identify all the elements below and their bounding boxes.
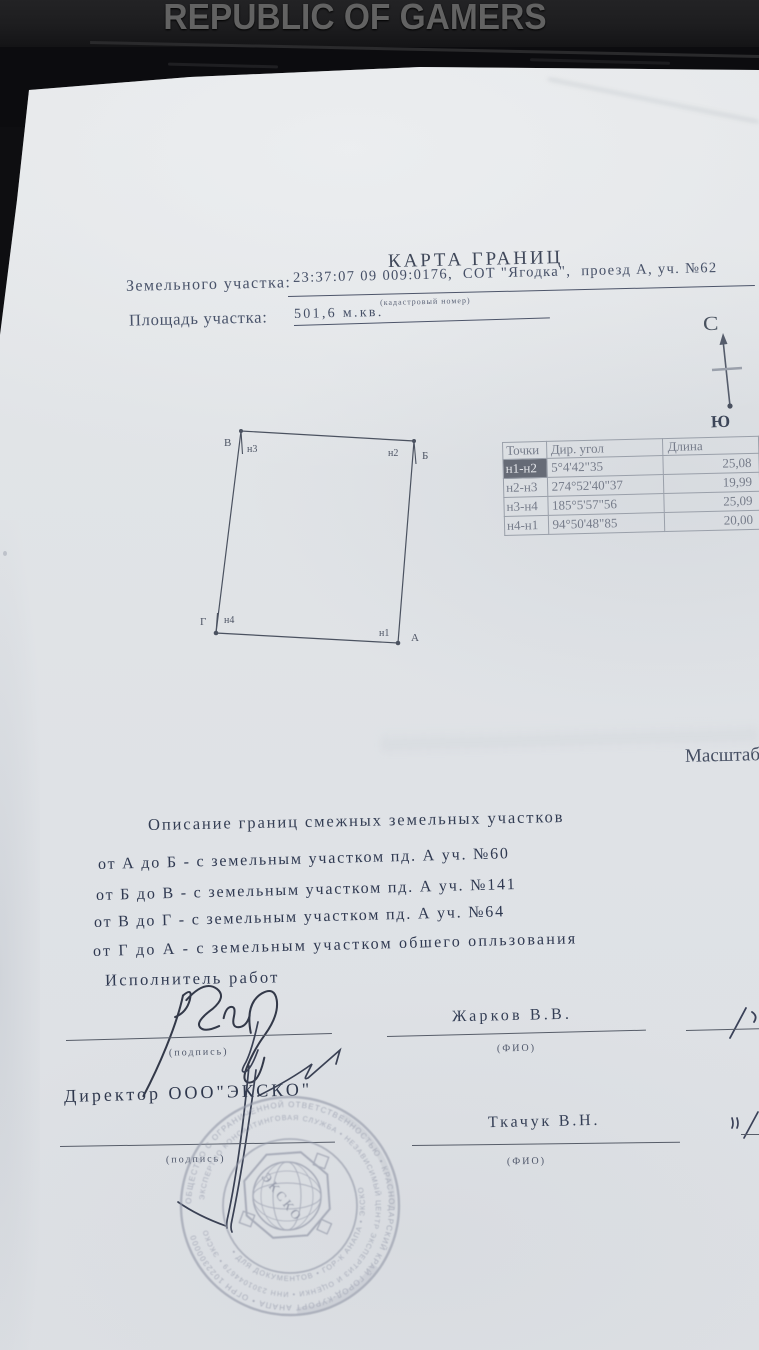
svg-text:н3: н3 bbox=[247, 444, 257, 455]
svg-text:н2: н2 bbox=[388, 448, 398, 459]
svg-text:н4: н4 bbox=[224, 615, 234, 626]
svg-text:В: В bbox=[224, 437, 231, 449]
svg-text:А: А bbox=[411, 632, 419, 644]
svg-text:Б: Б bbox=[422, 450, 428, 462]
svg-text:н1: н1 bbox=[379, 628, 389, 639]
svg-text:Г: Г bbox=[200, 616, 206, 628]
